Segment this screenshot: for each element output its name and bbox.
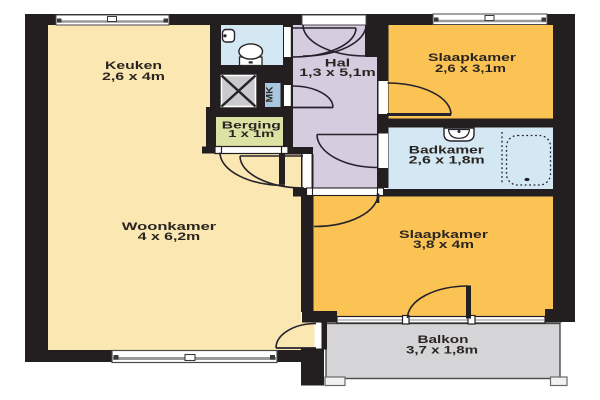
svg-text:1 x 1m: 1 x 1m bbox=[228, 129, 274, 140]
svg-text:2,6 x 3,1m: 2,6 x 3,1m bbox=[435, 63, 506, 75]
svg-text:1,3 x 5,1m: 1,3 x 5,1m bbox=[299, 67, 376, 79]
svg-text:2,6 x 4m: 2,6 x 4m bbox=[102, 71, 165, 83]
svg-text:4 x 6,2m: 4 x 6,2m bbox=[138, 231, 200, 243]
svg-text:MK: MK bbox=[264, 86, 274, 103]
svg-text:2,6 x 1,8m: 2,6 x 1,8m bbox=[409, 155, 485, 167]
svg-text:3,8 x 4m: 3,8 x 4m bbox=[413, 239, 474, 251]
svg-text:3,7 x 1,8m: 3,7 x 1,8m bbox=[406, 345, 478, 357]
